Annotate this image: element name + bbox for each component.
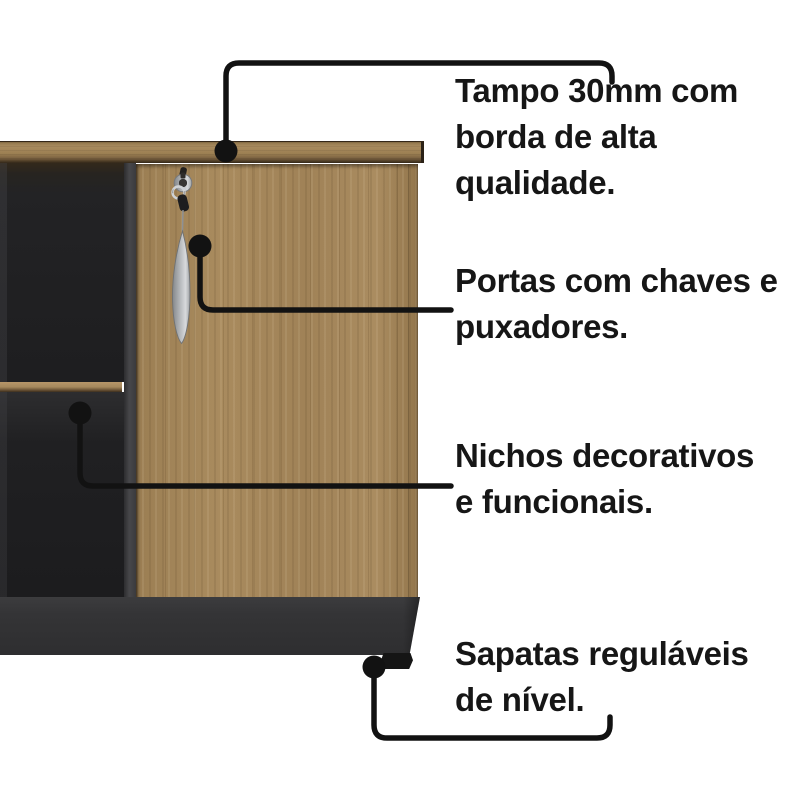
adjustable-foot	[381, 653, 413, 669]
product-infographic: Tampo 30mm com borda de alta qualidade. …	[0, 0, 800, 800]
vertical-divider	[124, 163, 136, 597]
niche-shelf	[0, 382, 122, 392]
upper-niche	[0, 163, 124, 382]
annotation-line: e funcionais.	[455, 479, 800, 525]
annotation-line: de nível.	[455, 677, 800, 723]
annotation-portas: Portas com chaves e puxadores.	[455, 258, 800, 350]
annotation-line: Portas com chaves e	[455, 258, 800, 304]
cabinet-base	[0, 597, 420, 655]
cabinet-door	[136, 164, 418, 608]
annotation-line: borda de alta	[455, 114, 800, 160]
annotation-line: Nichos decorativos	[455, 433, 800, 479]
annotation-line: Sapatas reguláveis	[455, 631, 800, 677]
annotation-nichos: Nichos decorativos e funcionais.	[455, 433, 800, 525]
annotation-line: qualidade.	[455, 160, 800, 206]
lower-niche	[0, 392, 124, 597]
door-edge-seam	[408, 164, 409, 608]
annotation-line: puxadores.	[455, 304, 800, 350]
annotation-line: Tampo 30mm com	[455, 68, 800, 114]
cabinet-top	[0, 141, 424, 163]
annotation-tampo: Tampo 30mm com borda de alta qualidade.	[455, 68, 800, 206]
annotation-sapatas: Sapatas reguláveis de nível.	[455, 631, 800, 723]
